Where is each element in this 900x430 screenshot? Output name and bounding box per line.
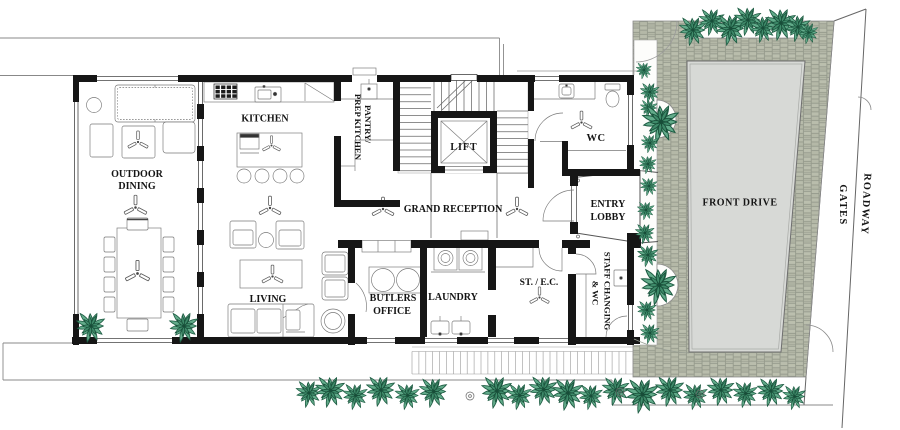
svg-text:PREP KITCHEN: PREP KITCHEN: [353, 94, 363, 161]
svg-text:DINING: DINING: [118, 181, 155, 192]
svg-text:& WC: & WC: [591, 281, 601, 306]
svg-text:LOBBY: LOBBY: [590, 212, 626, 223]
svg-text:BUTLERS: BUTLERS: [370, 293, 417, 304]
svg-text:ST. / E.C.: ST. / E.C.: [520, 278, 559, 288]
svg-text:OFFICE: OFFICE: [373, 306, 411, 317]
svg-text:OUTDOOR: OUTDOOR: [111, 169, 163, 180]
svg-text:WC: WC: [586, 133, 605, 144]
svg-text:KITCHEN: KITCHEN: [241, 114, 289, 125]
svg-text:LIFT: LIFT: [450, 142, 477, 153]
svg-text:GATES: GATES: [837, 184, 848, 225]
svg-text:GRAND RECEPTION: GRAND RECEPTION: [404, 204, 503, 215]
svg-text:LIVING: LIVING: [250, 294, 287, 305]
svg-text:LAUNDRY: LAUNDRY: [428, 292, 478, 303]
svg-text:PANTRY/: PANTRY/: [363, 105, 373, 144]
svg-text:ENTRY: ENTRY: [591, 199, 626, 210]
svg-text:FRONT DRIVE: FRONT DRIVE: [702, 198, 777, 209]
svg-text:STAFF CHANGING: STAFF CHANGING: [603, 252, 613, 331]
